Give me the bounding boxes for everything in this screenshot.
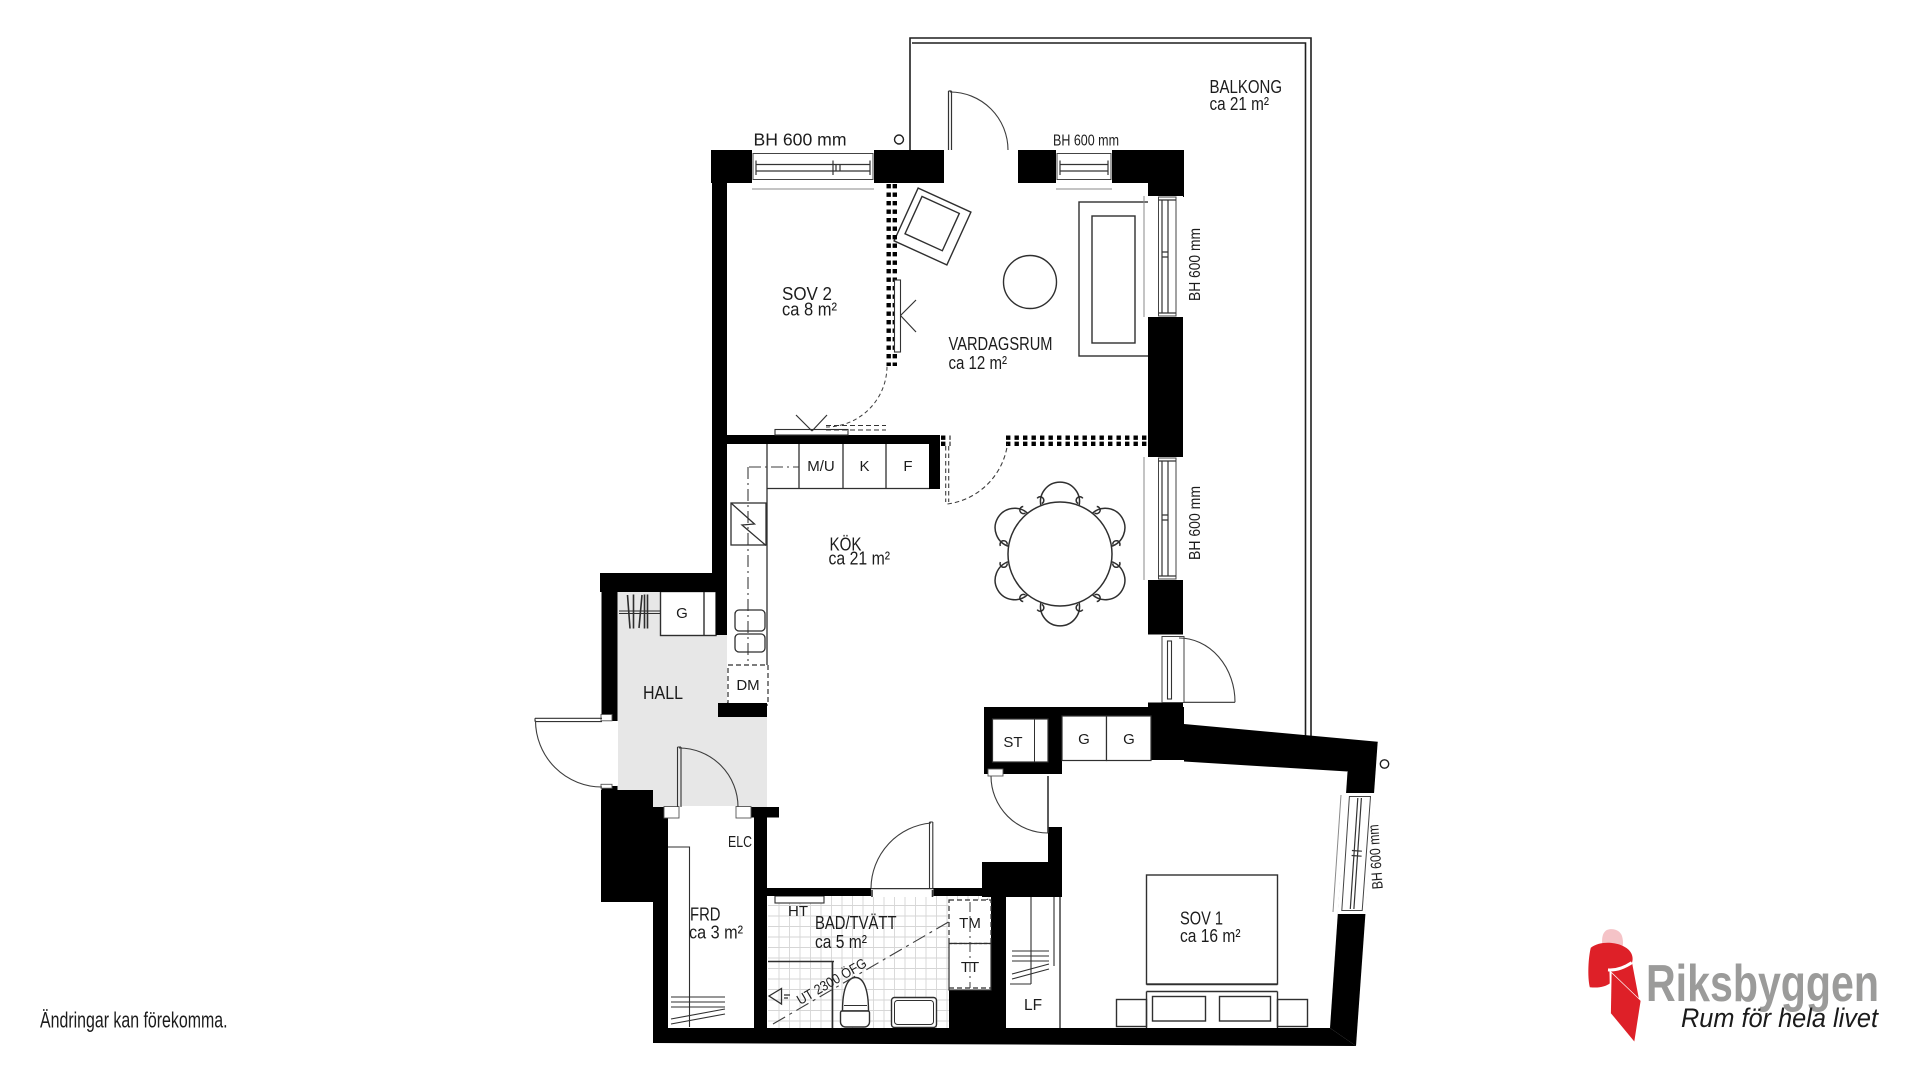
svg-text:DM: DM: [736, 677, 759, 694]
svg-text:K: K: [859, 458, 869, 475]
svg-text:VARDAGSRUM: VARDAGSRUM: [949, 333, 1053, 354]
svg-text:BH 600 mm: BH 600 mm: [1187, 486, 1204, 560]
svg-text:BH 600 mm: BH 600 mm: [1365, 824, 1386, 890]
svg-text:HT: HT: [788, 903, 808, 920]
svg-text:ca 5 m²: ca 5 m²: [815, 931, 867, 952]
svg-text:ca 3 m²: ca 3 m²: [689, 922, 743, 943]
svg-text:ST: ST: [1003, 734, 1022, 751]
svg-text:TT: TT: [961, 959, 979, 976]
svg-text:BH 600 mm: BH 600 mm: [754, 130, 847, 150]
svg-text:BAD/TVÄTT: BAD/TVÄTT: [815, 912, 897, 933]
svg-text:M/U: M/U: [807, 458, 835, 475]
svg-text:ELC: ELC: [728, 834, 752, 851]
svg-text:BH 600 mm: BH 600 mm: [1053, 133, 1119, 150]
svg-text:Rum för hela livet: Rum för hela livet: [1681, 1003, 1879, 1033]
svg-text:ca 12 m²: ca 12 m²: [949, 352, 1008, 373]
svg-text:HALL: HALL: [643, 682, 683, 703]
svg-text:BH 600 mm: BH 600 mm: [1187, 228, 1204, 301]
svg-text:ca 21 m²: ca 21 m²: [829, 548, 891, 569]
svg-text:F: F: [903, 458, 912, 475]
svg-text:ca 21 m²: ca 21 m²: [1210, 93, 1270, 114]
svg-text:ca 16 m²: ca 16 m²: [1180, 925, 1241, 946]
svg-text:G: G: [1123, 731, 1135, 748]
svg-text:LF: LF: [1024, 997, 1042, 1014]
svg-text:G: G: [676, 605, 688, 622]
svg-text:ca 8 m²: ca 8 m²: [782, 299, 837, 320]
svg-text:Ändringar kan förekomma.: Ändringar kan förekomma.: [40, 1008, 228, 1033]
svg-text:G: G: [1078, 731, 1090, 748]
